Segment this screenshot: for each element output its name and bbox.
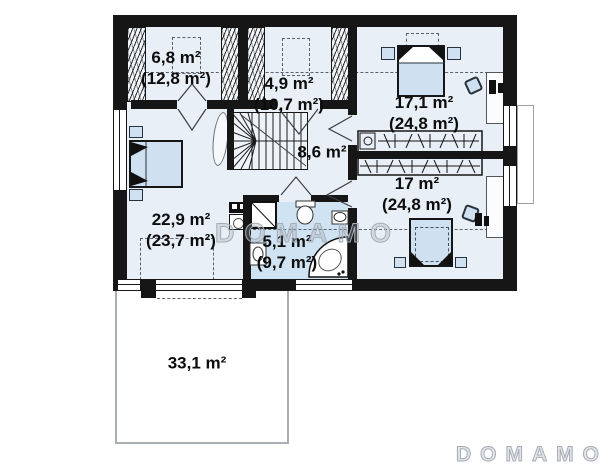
tv-icon <box>475 213 482 226</box>
nightstand <box>447 47 461 60</box>
area-value: 4,9 m² <box>254 73 324 94</box>
door-opening <box>279 195 311 202</box>
tv-icon <box>489 80 496 94</box>
area-total-value: (9,7 m²) <box>257 252 317 273</box>
nightstand <box>129 189 143 201</box>
lamp-icon <box>484 216 489 226</box>
terrace-door <box>156 279 242 291</box>
double-bed <box>409 218 453 267</box>
room-label-hallway: 8,6 m² <box>297 142 346 163</box>
area-total-value: (10,7 m²) <box>254 94 324 115</box>
door-opening <box>348 180 357 208</box>
window <box>118 279 140 291</box>
window <box>296 279 352 291</box>
wall <box>503 15 517 291</box>
area-value: 6,8 m² <box>141 47 211 68</box>
window <box>113 110 127 190</box>
window <box>503 166 517 206</box>
door-opening <box>177 100 207 109</box>
roof-window-dashed <box>282 38 310 76</box>
double-bed <box>397 45 445 97</box>
nightstand <box>129 126 143 138</box>
wall <box>238 27 247 100</box>
area-value: 22,9 m² <box>146 209 216 230</box>
nightstand <box>455 257 467 268</box>
nightstand <box>394 257 406 268</box>
area-total-value: (24,8 m²) <box>389 113 459 134</box>
room-label-wardrobe-left: 6,8 m² (12,8 m²) <box>141 47 211 89</box>
nightstand <box>381 47 395 60</box>
wall <box>113 15 517 27</box>
bed-duvet <box>399 63 443 95</box>
staircase <box>230 112 308 170</box>
floor-plan-canvas: 6,8 m² (12,8 m²) 4,9 m² (10,7 m²) 17,1 m… <box>0 0 609 470</box>
area-value: 33,1 m² <box>168 353 227 374</box>
area-value: 17,1 m² <box>389 92 459 113</box>
area-total-value: (23,7 m²) <box>146 230 216 251</box>
wall <box>348 27 357 115</box>
room-label-terrace: 33,1 m² <box>168 353 227 374</box>
terrace-pillar <box>242 281 256 298</box>
terrace-door-dashed-line <box>157 298 242 299</box>
area-total-value: (12,8 m²) <box>141 68 211 89</box>
room-label-bedroom-top-right: 17,1 m² (24,8 m²) <box>389 92 459 134</box>
area-value: 8,6 m² <box>297 142 346 163</box>
bed-duvet-dashed <box>415 227 449 262</box>
window <box>503 106 517 146</box>
wall <box>227 109 234 170</box>
room-label-bedroom-left: 22,9 m² (23,7 m²) <box>146 209 216 251</box>
wall <box>356 151 503 159</box>
watermark: DOMAMO <box>215 218 401 249</box>
chimney <box>517 105 534 204</box>
room-label-wardrobe-middle: 4,9 m² (10,7 m²) <box>254 73 324 115</box>
terrace-pillar <box>141 281 156 298</box>
area-total-value: (24,8 m²) <box>382 194 452 215</box>
double-bed <box>129 140 183 188</box>
room-label-bedroom-bottom-right: 17 m² (24,8 m²) <box>382 173 452 215</box>
area-value: 17 m² <box>382 173 452 194</box>
cabinet-detail <box>232 204 237 209</box>
logo: DOMAMO <box>456 443 608 467</box>
